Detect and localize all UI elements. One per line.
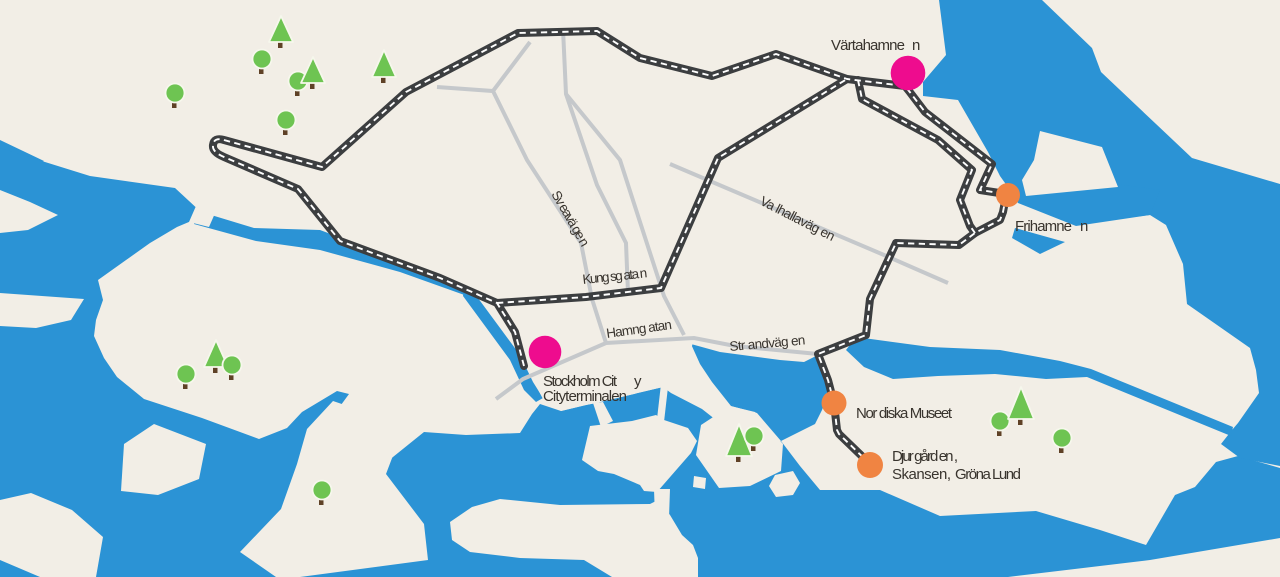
svg-text:n: n [912,37,920,54]
svg-text:Gröna Lund: Gröna Lund [955,466,1021,483]
svg-text:Djur gård en ,: Djur gård en , [892,448,958,465]
svg-text:Nor diska Museet: Nor diska Museet [856,405,953,422]
svg-text:Frihamne: Frihamne [1015,218,1072,235]
svg-text:Skansen,: Skansen, [892,466,951,483]
svg-text:n: n [1080,218,1088,235]
svg-text:y: y [634,373,642,390]
svg-text:Värtahamne: Värtahamne [831,37,905,54]
svg-text:Cityterminalen: Cityterminalen [543,388,627,405]
